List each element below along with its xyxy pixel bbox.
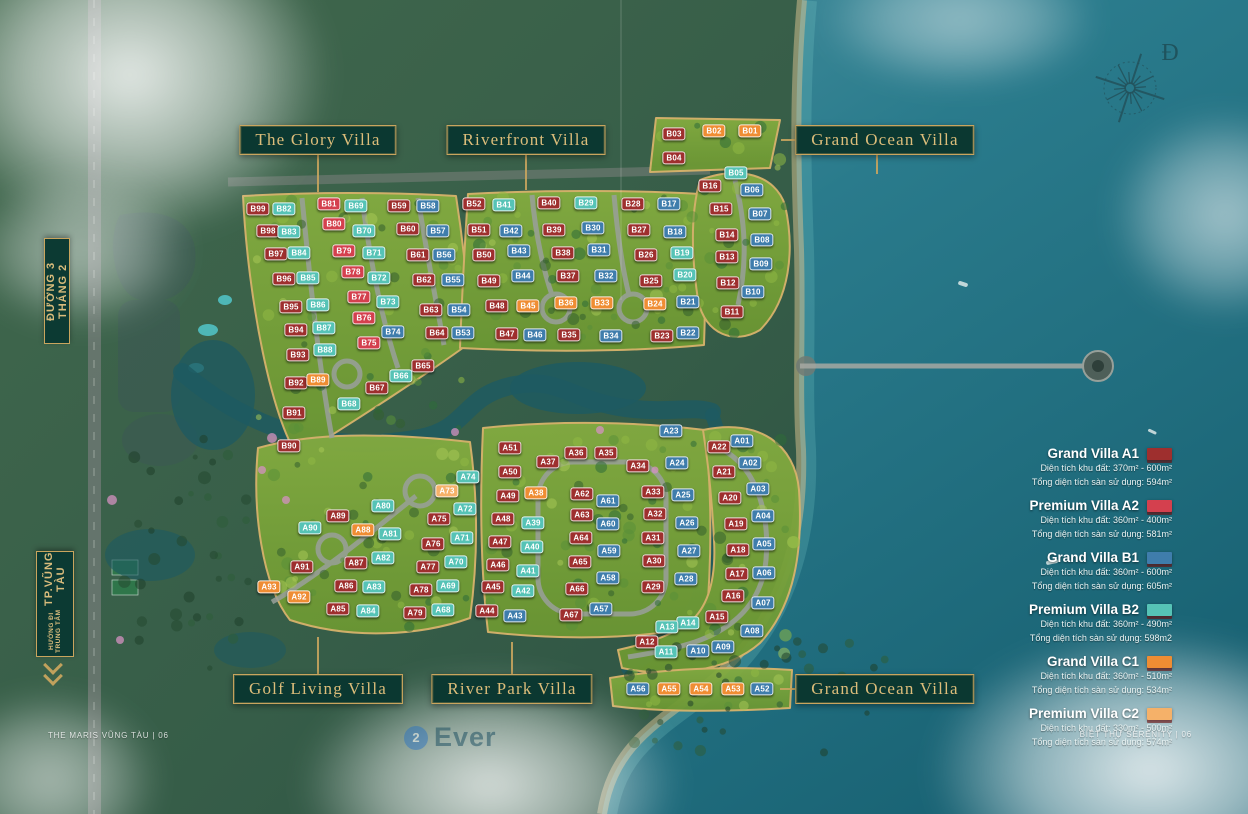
lot-A28[interactable]: A28 (674, 572, 697, 585)
watermark: 2 Ever (404, 722, 497, 753)
legend-villa-name: Grand Villa B1 (1047, 550, 1139, 565)
lot-A16[interactable]: A16 (721, 589, 744, 602)
lot-B01[interactable]: B01 (738, 124, 761, 137)
lot-A74[interactable]: A74 (456, 470, 479, 483)
lot-A10[interactable]: A10 (686, 644, 709, 657)
lot-A17[interactable]: A17 (725, 567, 748, 580)
lot-B40[interactable]: B40 (537, 196, 560, 209)
lot-B30[interactable]: B30 (581, 221, 604, 234)
legend-item-c1: Grand Villa C1Diện tích khu đất: 360m² -… (932, 654, 1172, 697)
lot-B18[interactable]: B18 (663, 225, 686, 238)
lot-B55[interactable]: B55 (441, 273, 464, 286)
lot-B49[interactable]: B49 (477, 274, 500, 287)
legend-color-swatch (1147, 708, 1172, 720)
lot-B75[interactable]: B75 (357, 336, 380, 349)
lot-B68[interactable]: B68 (337, 397, 360, 410)
lot-A06[interactable]: A06 (752, 566, 775, 579)
lot-A51[interactable]: A51 (498, 441, 521, 454)
lot-B24[interactable]: B24 (643, 297, 666, 310)
legend-item-a2: Premium Villa A2Diện tích khu đất: 360m²… (932, 498, 1172, 541)
legend-floor-area: Tổng diện tích sàn sử dụng: 581m² (932, 528, 1172, 542)
lot-A45[interactable]: A45 (481, 580, 504, 593)
lot-A15[interactable]: A15 (705, 610, 728, 623)
lot-A05[interactable]: A05 (752, 537, 775, 550)
lot-A66[interactable]: A66 (565, 582, 588, 595)
lot-B13[interactable]: B13 (715, 250, 738, 263)
lot-A58[interactable]: A58 (596, 571, 619, 584)
legend-villa-name: Premium Villa A2 (1029, 498, 1139, 513)
lot-B59[interactable]: B59 (387, 199, 410, 212)
lot-B41[interactable]: B41 (492, 198, 515, 211)
lot-B02[interactable]: B02 (702, 124, 725, 137)
lot-B21[interactable]: B21 (676, 295, 699, 308)
lot-B50[interactable]: B50 (472, 248, 495, 261)
lot-A42[interactable]: A42 (511, 584, 534, 597)
lot-B61[interactable]: B61 (406, 248, 429, 261)
lot-B34[interactable]: B34 (599, 329, 622, 342)
lot-A19[interactable]: A19 (724, 517, 747, 530)
lot-A81[interactable]: A81 (378, 527, 401, 540)
lot-B60[interactable]: B60 (396, 222, 419, 235)
watermark-logo-icon: 2 (404, 726, 428, 750)
legend-item-b2: Premium Villa B2Diện tích khu đất: 360m²… (932, 602, 1172, 645)
lot-A75[interactable]: A75 (427, 512, 450, 525)
lot-B22[interactable]: B22 (676, 326, 699, 339)
lot-B93[interactable]: B93 (286, 348, 309, 361)
lot-A57[interactable]: A57 (589, 602, 612, 615)
legend-item-c2: Premium Villa C2Diện tích khu đất: 330m²… (932, 706, 1172, 749)
lot-B27[interactable]: B27 (627, 223, 650, 236)
lot-B97[interactable]: B97 (264, 247, 287, 260)
lot-B38[interactable]: B38 (551, 246, 574, 259)
legend-floor-area: Tổng diện tích sàn sử dụng: 605m² (932, 580, 1172, 594)
lot-A59[interactable]: A59 (597, 544, 620, 557)
lot-B62[interactable]: B62 (412, 273, 435, 286)
lot-B48[interactable]: B48 (485, 299, 508, 312)
lot-A09[interactable]: A09 (711, 640, 734, 653)
lot-B56[interactable]: B56 (432, 248, 455, 261)
lot-B71[interactable]: B71 (362, 246, 385, 259)
lot-B04[interactable]: B04 (662, 151, 685, 164)
watermark-text: Ever (434, 722, 497, 753)
lot-B29[interactable]: B29 (574, 196, 597, 209)
lot-B66[interactable]: B66 (389, 369, 412, 382)
legend-item-a1: Grand Villa A1Diện tích khu đất: 370m² -… (932, 446, 1172, 489)
lot-B36[interactable]: B36 (554, 296, 577, 309)
lot-B16[interactable]: B16 (698, 179, 721, 192)
lot-A14[interactable]: A14 (676, 616, 699, 629)
lot-A39[interactable]: A39 (521, 516, 544, 529)
lot-A80[interactable]: A80 (371, 499, 394, 512)
lot-B82[interactable]: B82 (272, 202, 295, 215)
lot-A65[interactable]: A65 (568, 555, 591, 568)
lot-B32[interactable]: B32 (594, 269, 617, 282)
legend-color-swatch (1147, 500, 1172, 512)
lot-B08[interactable]: B08 (750, 233, 773, 246)
legend-floor-area: Tổng diện tích sàn sử dụng: 594m² (932, 476, 1172, 490)
lot-A23[interactable]: A23 (659, 424, 682, 437)
lot-A62[interactable]: A62 (570, 487, 593, 500)
lot-A79[interactable]: A79 (403, 606, 426, 619)
lot-A70[interactable]: A70 (444, 555, 467, 568)
lot-A72[interactable]: A72 (453, 502, 476, 515)
legend-villa-name: Premium Villa C2 (1029, 706, 1139, 721)
lot-B43[interactable]: B43 (507, 244, 530, 257)
lot-A83[interactable]: A83 (362, 580, 385, 593)
lot-A32[interactable]: A32 (643, 507, 666, 520)
lot-B03[interactable]: B03 (662, 127, 685, 140)
lot-A52[interactable]: A52 (750, 682, 773, 695)
lot-A21[interactable]: A21 (712, 465, 735, 478)
road-label-line2: TP.VŨNG TÀU (43, 552, 67, 606)
lot-A38[interactable]: A38 (524, 486, 547, 499)
lot-B99[interactable]: B99 (246, 202, 269, 215)
lot-B96[interactable]: B96 (272, 272, 295, 285)
lot-B91[interactable]: B91 (282, 406, 305, 419)
lot-B45[interactable]: B45 (516, 299, 539, 312)
lot-B87[interactable]: B87 (312, 321, 335, 334)
lot-A44[interactable]: A44 (475, 604, 498, 617)
lot-B58[interactable]: B58 (416, 199, 439, 212)
lot-A08[interactable]: A08 (740, 624, 763, 637)
lot-B74[interactable]: B74 (381, 325, 404, 338)
lot-A30[interactable]: A30 (642, 554, 665, 567)
lot-B90[interactable]: B90 (277, 439, 300, 452)
lot-A49[interactable]: A49 (496, 489, 519, 502)
lot-B23[interactable]: B23 (650, 329, 673, 342)
lot-B51[interactable]: B51 (467, 223, 490, 236)
lot-A01[interactable]: A01 (730, 434, 753, 447)
lot-B86[interactable]: B86 (306, 298, 329, 311)
lot-A53[interactable]: A53 (721, 682, 744, 695)
lot-B09[interactable]: B09 (749, 257, 772, 270)
lot-A86[interactable]: A86 (334, 579, 357, 592)
legend-villa-name: Premium Villa B2 (1029, 602, 1139, 617)
lot-B67[interactable]: B67 (365, 381, 388, 394)
lot-A67[interactable]: A67 (559, 608, 582, 621)
lot-A91[interactable]: A91 (290, 560, 313, 573)
lot-B78[interactable]: B78 (341, 265, 364, 278)
lot-B52[interactable]: B52 (462, 197, 485, 210)
lot-B25[interactable]: B25 (639, 274, 662, 287)
lot-A76[interactable]: A76 (421, 537, 444, 550)
lot-A37[interactable]: A37 (536, 455, 559, 468)
lot-B53[interactable]: B53 (451, 326, 474, 339)
lot-A33[interactable]: A33 (641, 485, 664, 498)
lot-B42[interactable]: B42 (499, 224, 522, 237)
lot-B31[interactable]: B31 (587, 243, 610, 256)
lot-B54[interactable]: B54 (447, 303, 470, 316)
lot-B14[interactable]: B14 (715, 228, 738, 241)
lot-A41[interactable]: A41 (516, 564, 539, 577)
lot-B47[interactable]: B47 (495, 327, 518, 340)
lot-B84[interactable]: B84 (287, 246, 310, 259)
lot-A50[interactable]: A50 (498, 465, 521, 478)
lot-B69[interactable]: B69 (344, 199, 367, 212)
lot-A22[interactable]: A22 (707, 440, 730, 453)
lot-B72[interactable]: B72 (367, 271, 390, 284)
lot-A02[interactable]: A02 (738, 456, 761, 469)
master-plan-map: The Glory VillaRiverfront VillaGrand Oce… (0, 0, 1248, 814)
lot-A69[interactable]: A69 (436, 579, 459, 592)
lot-A13[interactable]: A13 (655, 620, 678, 633)
lot-B92[interactable]: B92 (284, 376, 307, 389)
legend-land-area: Diện tích khu đất: 360m² - 490m² (932, 618, 1172, 632)
legend-villa-name: Grand Villa A1 (1047, 446, 1139, 461)
lot-A20[interactable]: A20 (718, 491, 741, 504)
lot-B85[interactable]: B85 (296, 271, 319, 284)
lot-B37[interactable]: B37 (556, 269, 579, 282)
villa-type-legend: Grand Villa A1Diện tích khu đất: 370m² -… (932, 446, 1172, 758)
lot-B19[interactable]: B19 (670, 246, 693, 259)
lot-B70[interactable]: B70 (352, 224, 375, 237)
lot-A04[interactable]: A04 (751, 509, 774, 522)
lot-A56[interactable]: A56 (626, 682, 649, 695)
lot-A26[interactable]: A26 (675, 516, 698, 529)
lot-A31[interactable]: A31 (641, 531, 664, 544)
legend-floor-area: Tổng diện tích sàn sử dụng: 598m2 (932, 632, 1172, 646)
lot-A47[interactable]: A47 (488, 535, 511, 548)
lot-B94[interactable]: B94 (284, 323, 307, 336)
lot-A63[interactable]: A63 (570, 508, 593, 521)
lot-B73[interactable]: B73 (376, 295, 399, 308)
lot-A18[interactable]: A18 (726, 543, 749, 556)
lot-A11[interactable]: A11 (655, 645, 678, 658)
lot-A84[interactable]: A84 (356, 604, 379, 617)
lot-A27[interactable]: A27 (677, 544, 700, 557)
lot-A92[interactable]: A92 (287, 590, 310, 603)
lot-A61[interactable]: A61 (596, 494, 619, 507)
footer-left: THE MARIS VŨNG TÀU | 06 (48, 731, 169, 740)
lot-B65[interactable]: B65 (411, 359, 434, 372)
lot-B15[interactable]: B15 (709, 202, 732, 215)
lot-A54[interactable]: A54 (689, 682, 712, 695)
lot-A29[interactable]: A29 (641, 580, 664, 593)
lot-A43[interactable]: A43 (503, 609, 526, 622)
lot-B77[interactable]: B77 (347, 290, 370, 303)
lot-B05[interactable]: B05 (724, 166, 747, 179)
lot-A25[interactable]: A25 (671, 488, 694, 501)
lot-B17[interactable]: B17 (657, 197, 680, 210)
lot-B12[interactable]: B12 (716, 276, 739, 289)
legend-villa-name: Grand Villa C1 (1047, 654, 1139, 669)
compass-east-label: Đ (1161, 40, 1178, 66)
lot-A78[interactable]: A78 (409, 583, 432, 596)
lot-B83[interactable]: B83 (277, 225, 300, 238)
legend-color-swatch (1147, 552, 1172, 564)
lot-A64[interactable]: A64 (569, 531, 592, 544)
legend-color-swatch (1147, 604, 1172, 616)
lot-B80[interactable]: B80 (322, 217, 345, 230)
legend-item-b1: Grand Villa B1Diện tích khu đất: 360m² -… (932, 550, 1172, 593)
lot-B07[interactable]: B07 (748, 207, 771, 220)
lot-B11[interactable]: B11 (721, 305, 744, 318)
lot-A89[interactable]: A89 (326, 509, 349, 522)
lot-A46[interactable]: A46 (486, 558, 509, 571)
lot-B81[interactable]: B81 (317, 197, 340, 210)
lot-B79[interactable]: B79 (332, 244, 355, 257)
lot-B64[interactable]: B64 (425, 326, 448, 339)
lot-B35[interactable]: B35 (557, 328, 580, 341)
lot-A68[interactable]: A68 (431, 603, 454, 616)
road-label-duong-3-thang-2: ĐƯỜNG 3 THÁNG 2 (44, 238, 70, 344)
lot-B88[interactable]: B88 (313, 343, 336, 356)
lot-A87[interactable]: A87 (344, 556, 367, 569)
legend-land-area: Diện tích khu đất: 370m² - 600m² (932, 462, 1172, 476)
lot-A71[interactable]: A71 (450, 531, 473, 544)
lot-B39[interactable]: B39 (542, 223, 565, 236)
lot-A88[interactable]: A88 (351, 523, 374, 536)
lot-B06[interactable]: B06 (740, 183, 763, 196)
lot-B46[interactable]: B46 (523, 328, 546, 341)
lot-B98[interactable]: B98 (256, 224, 279, 237)
lot-A55[interactable]: A55 (657, 682, 680, 695)
compass-rose-icon: Đ (1078, 24, 1194, 140)
legend-land-area: Diện tích khu đất: 360m² - 510m² (932, 670, 1172, 684)
lot-A82[interactable]: A82 (371, 551, 394, 564)
lot-B33[interactable]: B33 (590, 296, 613, 309)
lot-A40[interactable]: A40 (520, 540, 543, 553)
lot-B76[interactable]: B76 (352, 311, 375, 324)
lot-A73[interactable]: A73 (435, 484, 458, 497)
lot-A03[interactable]: A03 (746, 482, 769, 495)
lot-A90[interactable]: A90 (298, 521, 321, 534)
lot-B28[interactable]: B28 (621, 197, 644, 210)
lot-B89[interactable]: B89 (306, 373, 329, 386)
lot-A77[interactable]: A77 (416, 560, 439, 573)
lot-A85[interactable]: A85 (326, 602, 349, 615)
legend-color-swatch (1147, 656, 1172, 668)
lot-B20[interactable]: B20 (673, 268, 696, 281)
legend-floor-area: Tổng diện tích sàn sử dụng: 534m² (932, 684, 1172, 698)
lot-A48[interactable]: A48 (491, 512, 514, 525)
lot-A36[interactable]: A36 (564, 446, 587, 459)
lot-A35[interactable]: A35 (594, 446, 617, 459)
road-label-huong-di-trung-tam: HƯỚNG ĐI TRUNG TÂM TP.VŨNG TÀU (36, 551, 74, 657)
road-label-line1: HƯỚNG ĐI TRUNG TÂM (48, 606, 62, 656)
lot-B95[interactable]: B95 (279, 300, 302, 313)
legend-land-area: Diện tích khu đất: 360m² - 400m² (932, 514, 1172, 528)
lot-A60[interactable]: A60 (596, 517, 619, 530)
lot-B10[interactable]: B10 (741, 285, 764, 298)
lot-A93[interactable]: A93 (257, 580, 280, 593)
legend-color-swatch (1147, 448, 1172, 460)
lot-B26[interactable]: B26 (634, 248, 657, 261)
footer-right: BIỆT THỰ SERENITY | 06 (1080, 730, 1192, 739)
lot-A07[interactable]: A07 (751, 596, 774, 609)
lot-B44[interactable]: B44 (511, 269, 534, 282)
lot-B57[interactable]: B57 (426, 224, 449, 237)
lot-A34[interactable]: A34 (626, 459, 649, 472)
legend-land-area: Diện tích khu đất: 360m² - 600m² (932, 566, 1172, 580)
lot-B63[interactable]: B63 (419, 303, 442, 316)
lot-A24[interactable]: A24 (665, 456, 688, 469)
